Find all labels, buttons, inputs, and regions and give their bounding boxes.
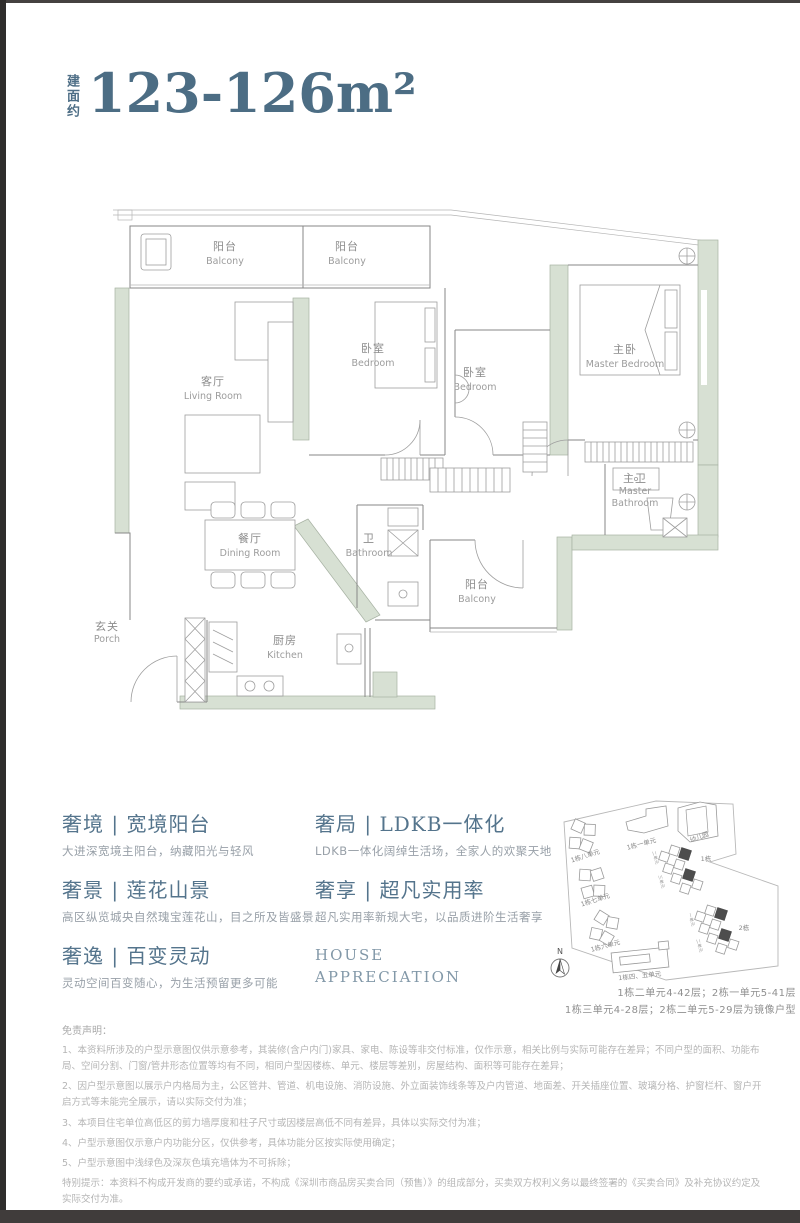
svg-text:厨房: 厨房 [273,634,297,647]
room-label-balcony-3: 阳台 Balcony [458,577,496,605]
svg-text:Balcony: Balcony [328,256,366,267]
svg-text:Master: Master [619,486,652,497]
svg-text:Master Bedroom: Master Bedroom [586,359,664,370]
disclaimer-special-note: 特别提示：本资料不构成开发商的要约或承诺，不构成《深圳市商品房买卖合同（预售）》… [62,1176,767,1208]
brochure-page: { "header": { "prefix": "建面约", "area": "… [0,0,800,1223]
svg-text:N: N [557,947,563,956]
photo-edge-top [0,0,800,3]
site-plan: 1栋八单元 1栋一单元 幼儿园 1栋 1栋七单元 1栋六单元 2栋 1栋四、五单… [548,796,798,984]
feature-title: 奢景 | 莲花山景 [62,878,317,902]
svg-text:Bedroom: Bedroom [352,358,395,369]
svg-text:阳台: 阳台 [465,577,489,591]
area-range: 123-126m² [88,66,417,120]
disclaimer-item: 5、户型示意图中浅绿色及深灰色填充墙体为不可拆除； [62,1156,767,1172]
room-label-kitchen: 厨房 Kitchen [267,634,303,661]
feature-title: 奢逸 | 百变灵动 [62,944,317,968]
svg-text:玄关: 玄关 [95,619,119,633]
house-appreciation-wordmark: HOUSE APPRECIATION [315,945,461,989]
room-label-balcony-2: 阳台 Balcony [328,239,366,267]
svg-text:餐厅: 餐厅 [238,531,262,545]
room-label-balcony-1: 阳台 Balcony [206,239,244,267]
feature-desc: 大进深宽境主阳台，纳藏阳光与轻风 [62,843,317,859]
label-building2: 2栋 [739,923,750,932]
disclaimer-item: 4、户型示意图仅示意户内功能分区，仅供参考，具体功能分区按实际使用确定； [62,1136,767,1152]
caption-line-1: 1栋二单元4-42层；2栋一单元5-41层 [440,986,796,1003]
furniture [141,234,695,702]
roof-lines [113,210,715,247]
disclaimer-title: 免责声明： [62,1022,767,1037]
disclaimer-item: 2、因户型示意图以展示户内格局为主，公区管井、管道、机电设施、消防设施、外立面装… [62,1079,767,1111]
svg-text:客厅: 客厅 [201,374,225,388]
room-label-bedroom-2: 卧室 Bedroom [454,365,497,393]
svg-text:Bathroom: Bathroom [346,548,393,559]
feature-balcony: 奢境 | 宽境阳台 大进深宽境主阳台，纳藏阳光与轻风 [62,812,317,859]
room-label-porch: 玄关 Porch [94,619,120,645]
svg-text:阳台: 阳台 [213,239,237,253]
svg-text:卧室: 卧室 [463,365,487,379]
title-prefix: 建面约 [62,74,81,119]
svg-text:卧室: 卧室 [361,341,385,355]
photo-edge-left [0,0,6,1223]
caption-line-2: 1栋三单元4-28层；2栋二单元5-29层为镜像户型 [440,1003,796,1020]
feature-desc: 灵动空间百变随心，为生活预留更多可能 [62,975,317,991]
svg-text:Balcony: Balcony [458,594,496,605]
svg-text:主卧: 主卧 [613,343,637,356]
svg-text:Dining Room: Dining Room [220,548,281,559]
label-building1: 1栋 [701,854,712,863]
feature-efficiency: 奢享 | 超凡实用率 超凡实用率新规大宅，以品质进阶生活奢享 [315,878,570,925]
feature-ldkb: 奢局 | LDKB一体化 LDKB一体化阔绰生活场，全家人的欢聚天地 [315,812,570,859]
feature-desc: 高区纵览城央自然瑰宝莲花山，目之所及皆盛景 [62,909,317,925]
svg-text:Bathroom: Bathroom [612,498,659,509]
feature-title: 奢局 | LDKB一体化 [315,812,570,836]
site-plan-captions: 1栋二单元4-42层；2栋一单元5-41层 1栋三单元4-28层；2栋二单元5-… [440,986,796,1019]
brand-line: HOUSE [315,945,461,967]
floor-plan: 阳台 Balcony 阳台 Balcony 客厅 Living Room 卧室 … [85,190,745,720]
svg-text:Balcony: Balcony [206,256,244,267]
feature-title: 奢境 | 宽境阳台 [62,812,317,836]
svg-text:Bedroom: Bedroom [454,382,497,393]
north-indicator: N [551,947,569,977]
svg-text:阳台: 阳台 [335,239,359,253]
feature-flexible-space: 奢逸 | 百变灵动 灵动空间百变随心，为生活预留更多可能 [62,944,317,991]
svg-text:Porch: Porch [94,634,120,645]
svg-text:主卫: 主卫 [623,472,647,485]
disclaimer: 免责声明： 1、本资料所涉及的户型示意图仅供示意参考，其装修(含户内门)家具、家… [62,1022,767,1212]
feature-desc: 超凡实用率新规大宅，以品质进阶生活奢享 [315,909,570,925]
disclaimer-item: 1、本资料所涉及的户型示意图仅供示意参考，其装修(含户内门)家具、家电、陈设等非… [62,1043,767,1075]
room-label-living-room: 客厅 Living Room [184,374,242,402]
feature-title: 奢享 | 超凡实用率 [315,878,570,902]
svg-text:Kitchen: Kitchen [267,650,303,661]
feature-mountain-view: 奢景 | 莲花山景 高区纵览城央自然瑰宝莲花山，目之所及皆盛景 [62,878,317,925]
feature-desc: LDKB一体化阔绰生活场，全家人的欢聚天地 [315,843,570,859]
svg-text:卫: 卫 [363,532,375,545]
page-title: 建面约 123-126m² [62,66,417,120]
room-label-bathroom: 卫 Bathroom [346,532,393,559]
disclaimer-item: 3、本项目住宅单位高低区的剪力墙厚度和柱子尺寸或因楼层高低不同有差异，具体以实际… [62,1116,767,1132]
svg-text:Living Room: Living Room [184,391,242,402]
